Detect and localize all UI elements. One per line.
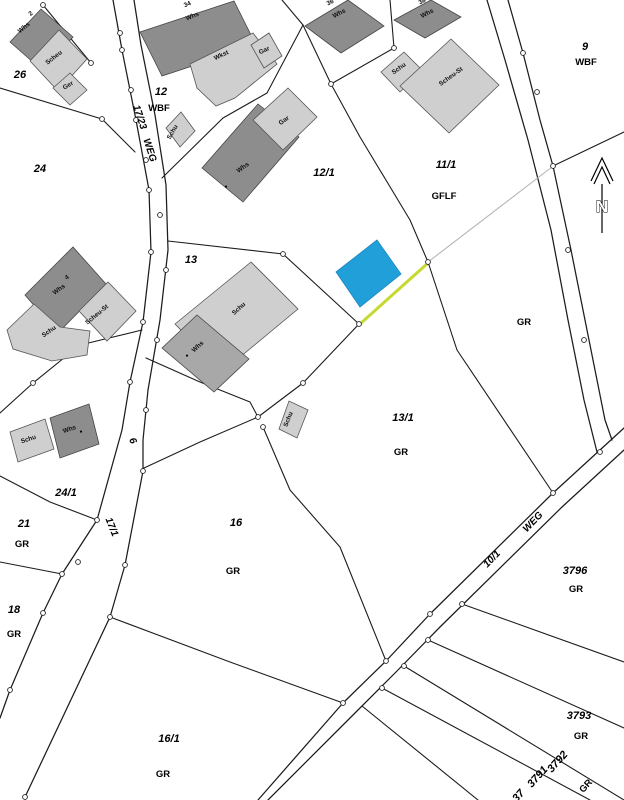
parcel-18: 18 bbox=[8, 604, 21, 616]
use-gr-18: GR bbox=[7, 629, 21, 640]
use-gr-13-1: GR bbox=[394, 447, 408, 458]
building-scheust-11-1 bbox=[400, 39, 499, 133]
strip-boundary bbox=[382, 688, 590, 800]
use-gflf-11-1: GFLF bbox=[432, 191, 457, 202]
parcel-24: 24 bbox=[33, 163, 46, 175]
parcel-12-1: 12/1 bbox=[313, 167, 334, 179]
strip-boundary bbox=[462, 604, 624, 662]
houseno-dot-3: ● bbox=[79, 429, 82, 435]
boundary bbox=[168, 241, 283, 254]
parcel-11-1: 11/1 bbox=[436, 159, 457, 171]
boundary bbox=[282, 0, 303, 25]
cadastral-map: N 262412WBF12/111/1GFLF9WBF1313/1GRGR24/… bbox=[0, 0, 624, 800]
auxiliary-gray-line bbox=[428, 167, 552, 262]
boundary bbox=[553, 132, 624, 166]
use-gr-16: GR bbox=[226, 566, 240, 577]
parcel-16-1: 16/1 bbox=[158, 733, 179, 745]
houseno-dot-1: ● bbox=[224, 184, 227, 190]
parcel-3793: 3793 bbox=[567, 710, 591, 722]
parcel-21: 21 bbox=[17, 518, 30, 530]
road-a-left-edge bbox=[0, 0, 151, 718]
road-weg-right: WEG bbox=[521, 510, 546, 535]
road-17-1: 17/1 bbox=[103, 516, 121, 539]
strip-boundary bbox=[404, 666, 624, 800]
north-arrow: N bbox=[591, 158, 613, 233]
parcel-16: 16 bbox=[230, 517, 243, 529]
strip-boundary bbox=[362, 706, 478, 800]
parcel-9: 9 bbox=[582, 41, 589, 53]
boundary bbox=[0, 476, 97, 520]
building-whs-38 bbox=[394, 0, 461, 38]
use-gr-right: GR bbox=[517, 317, 531, 328]
buildings bbox=[7, 0, 499, 462]
use-gr-3793: GR bbox=[574, 731, 588, 742]
boundary bbox=[110, 617, 343, 703]
building-whs-36 bbox=[305, 0, 384, 53]
north-label: N bbox=[596, 197, 608, 216]
parcel-3796: 3796 bbox=[563, 565, 588, 577]
parcel-24-1: 24/1 bbox=[54, 487, 76, 499]
parcel-37-clipped: 37 bbox=[510, 787, 528, 800]
use-wbf-9: WBF bbox=[575, 57, 597, 68]
parcel-26: 26 bbox=[13, 69, 27, 81]
road-b-nw-edge bbox=[258, 428, 624, 800]
road-b-se-edge bbox=[268, 450, 624, 800]
houseno-36: 36 bbox=[326, 0, 336, 7]
boundary bbox=[144, 417, 258, 468]
boundary bbox=[263, 427, 386, 661]
building-schu-13-1 bbox=[279, 401, 308, 438]
use-gr-3796: GR bbox=[569, 584, 583, 595]
houseno-34: 34 bbox=[183, 0, 193, 9]
houseno-dot-2: ● bbox=[185, 353, 188, 359]
use-wbf-12: WBF bbox=[148, 103, 170, 114]
parcel-12: 12 bbox=[155, 86, 167, 98]
use-gr-21: GR bbox=[15, 539, 29, 550]
road-10-1: 10/1 bbox=[481, 548, 503, 570]
parcel-13-1: 13/1 bbox=[392, 412, 413, 424]
boundary bbox=[0, 562, 62, 574]
road-6: 6 bbox=[126, 436, 139, 446]
parcel-13: 13 bbox=[185, 254, 197, 266]
use-gr-3792: GR bbox=[577, 777, 595, 795]
road-17-23: 17/23 bbox=[130, 104, 148, 132]
strip-boundary bbox=[428, 640, 624, 728]
boundary bbox=[258, 324, 359, 417]
use-gr-16-1: GR bbox=[156, 769, 170, 780]
